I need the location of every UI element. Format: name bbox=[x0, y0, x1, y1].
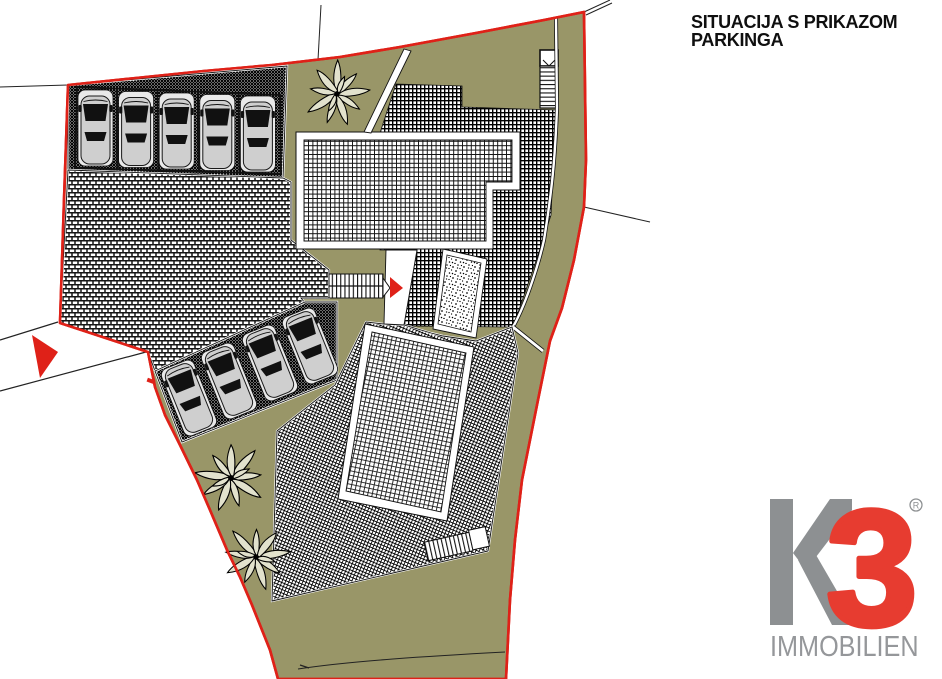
svg-text:SITUACIJA S PRIKAZOM: SITUACIJA S PRIKAZOM bbox=[691, 12, 897, 32]
svg-text:R: R bbox=[913, 501, 920, 511]
svg-text:PARKINGA: PARKINGA bbox=[691, 30, 784, 50]
svg-text:IMMOBILIEN: IMMOBILIEN bbox=[770, 629, 919, 662]
